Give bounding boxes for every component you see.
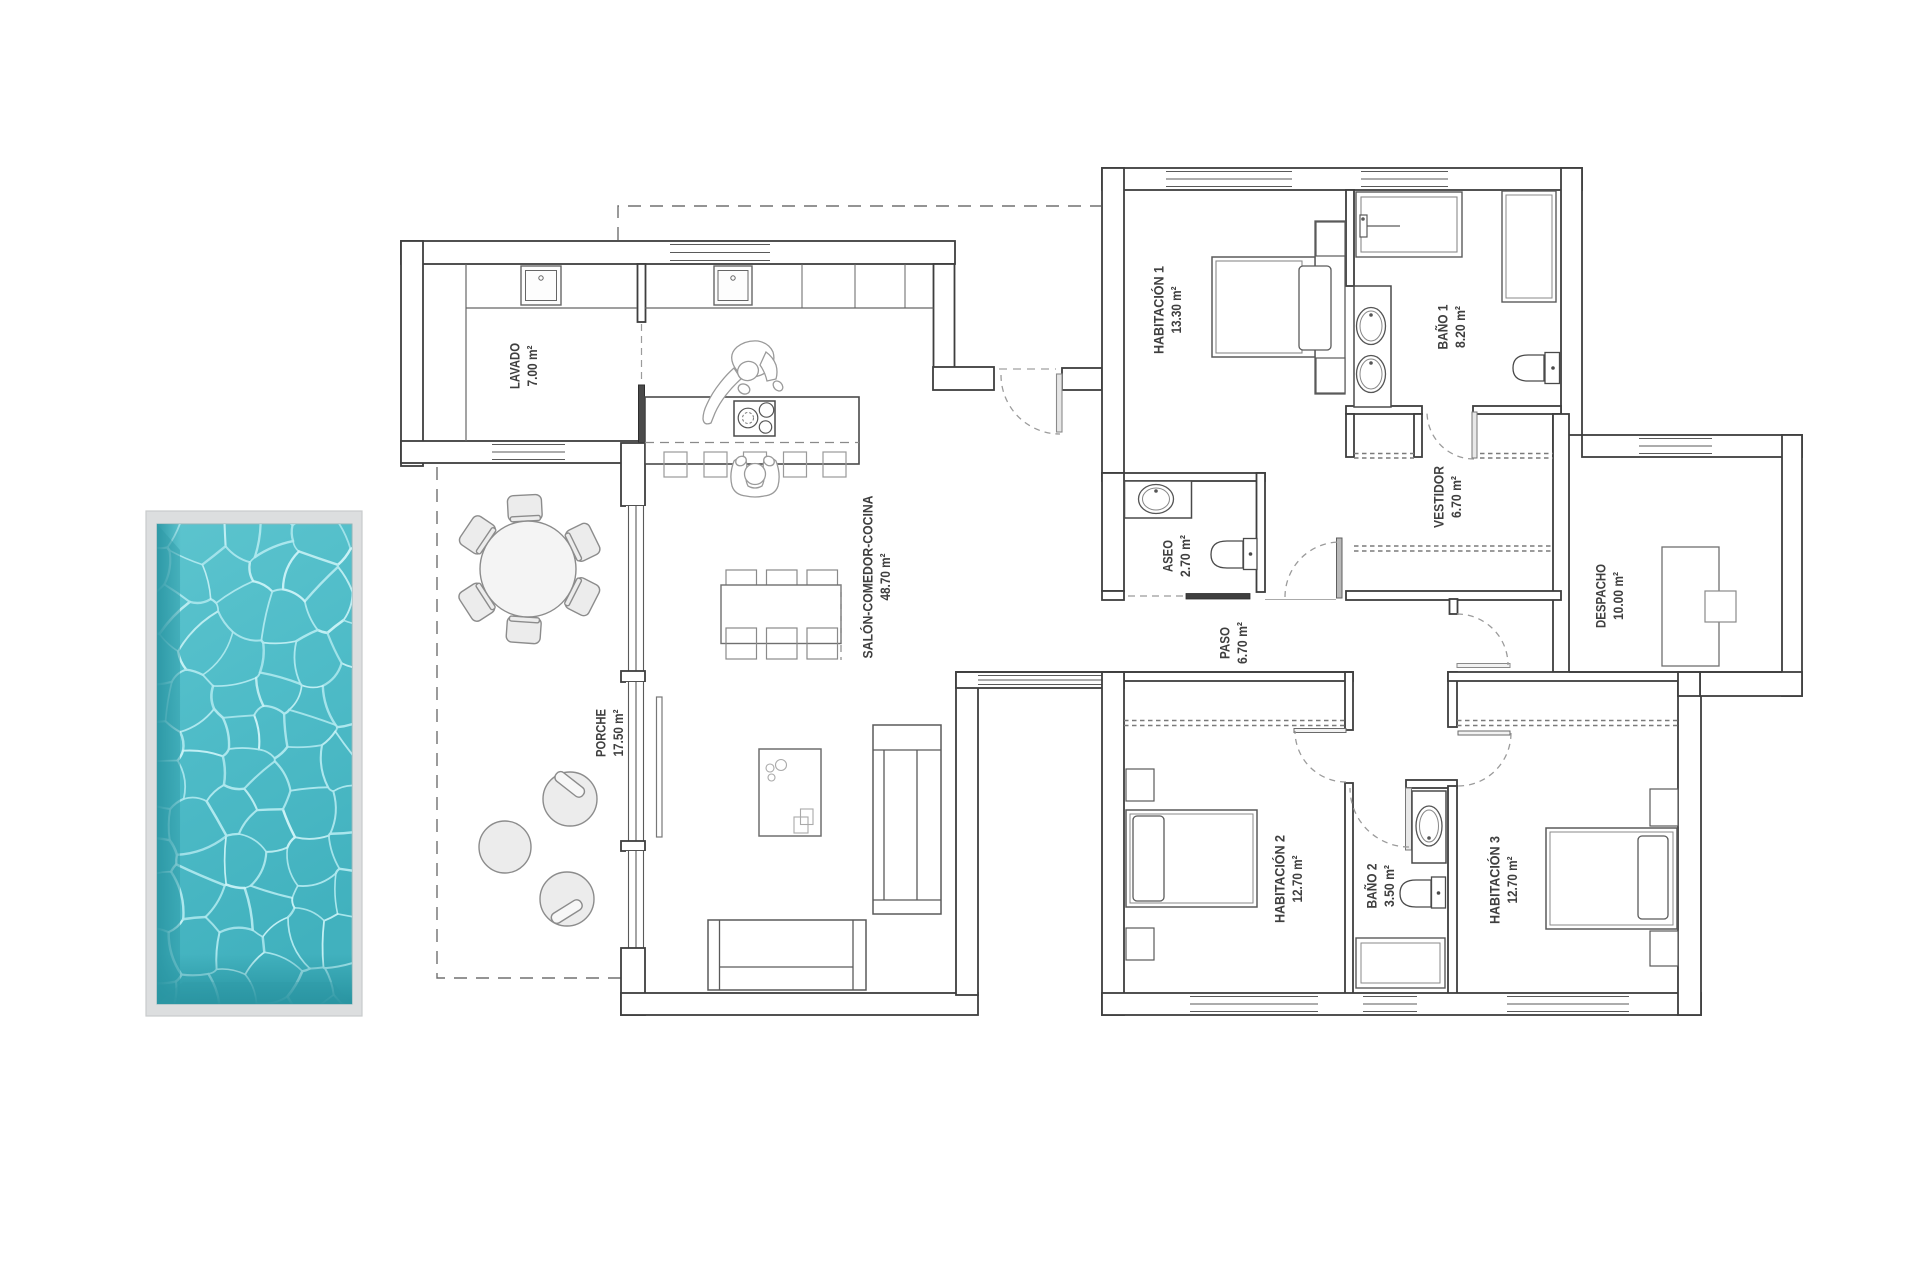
svg-text:SALÓN-COMEDOR-COCINA: SALÓN-COMEDOR-COCINA xyxy=(859,496,877,659)
svg-text:LAVADO: LAVADO xyxy=(508,343,524,389)
svg-text:6.70 m²: 6.70 m² xyxy=(1235,622,1251,664)
svg-text:12.70 m²: 12.70 m² xyxy=(1290,855,1306,902)
svg-text:HABITACIÓN 2: HABITACIÓN 2 xyxy=(1271,835,1289,923)
svg-text:PORCHE: PORCHE xyxy=(594,709,610,757)
svg-text:3.50 m²: 3.50 m² xyxy=(1382,865,1398,907)
svg-text:8.20 m²: 8.20 m² xyxy=(1453,306,1469,348)
svg-text:HABITACIÓN 3: HABITACIÓN 3 xyxy=(1486,836,1504,924)
svg-text:HABITACIÓN 1: HABITACIÓN 1 xyxy=(1150,266,1168,354)
svg-text:DESPACHO: DESPACHO xyxy=(1594,564,1610,628)
svg-text:7.00 m²: 7.00 m² xyxy=(525,345,541,386)
svg-text:PASO: PASO xyxy=(1218,627,1234,659)
svg-text:BAÑO 2: BAÑO 2 xyxy=(1363,863,1381,908)
svg-text:13.30 m²: 13.30 m² xyxy=(1169,286,1185,333)
svg-text:6.70 m²: 6.70 m² xyxy=(1449,476,1465,518)
svg-text:ASEO: ASEO xyxy=(1161,540,1177,572)
svg-text:48.70 m²: 48.70 m² xyxy=(878,553,894,600)
svg-text:VESTIDOR: VESTIDOR xyxy=(1432,466,1448,528)
svg-text:17.50 m²: 17.50 m² xyxy=(611,709,627,756)
svg-text:12.70 m²: 12.70 m² xyxy=(1505,856,1521,903)
svg-text:BAÑO 1: BAÑO 1 xyxy=(1434,304,1452,349)
svg-text:10.00 m²: 10.00 m² xyxy=(1611,572,1627,620)
svg-text:2.70 m²: 2.70 m² xyxy=(1178,535,1194,577)
